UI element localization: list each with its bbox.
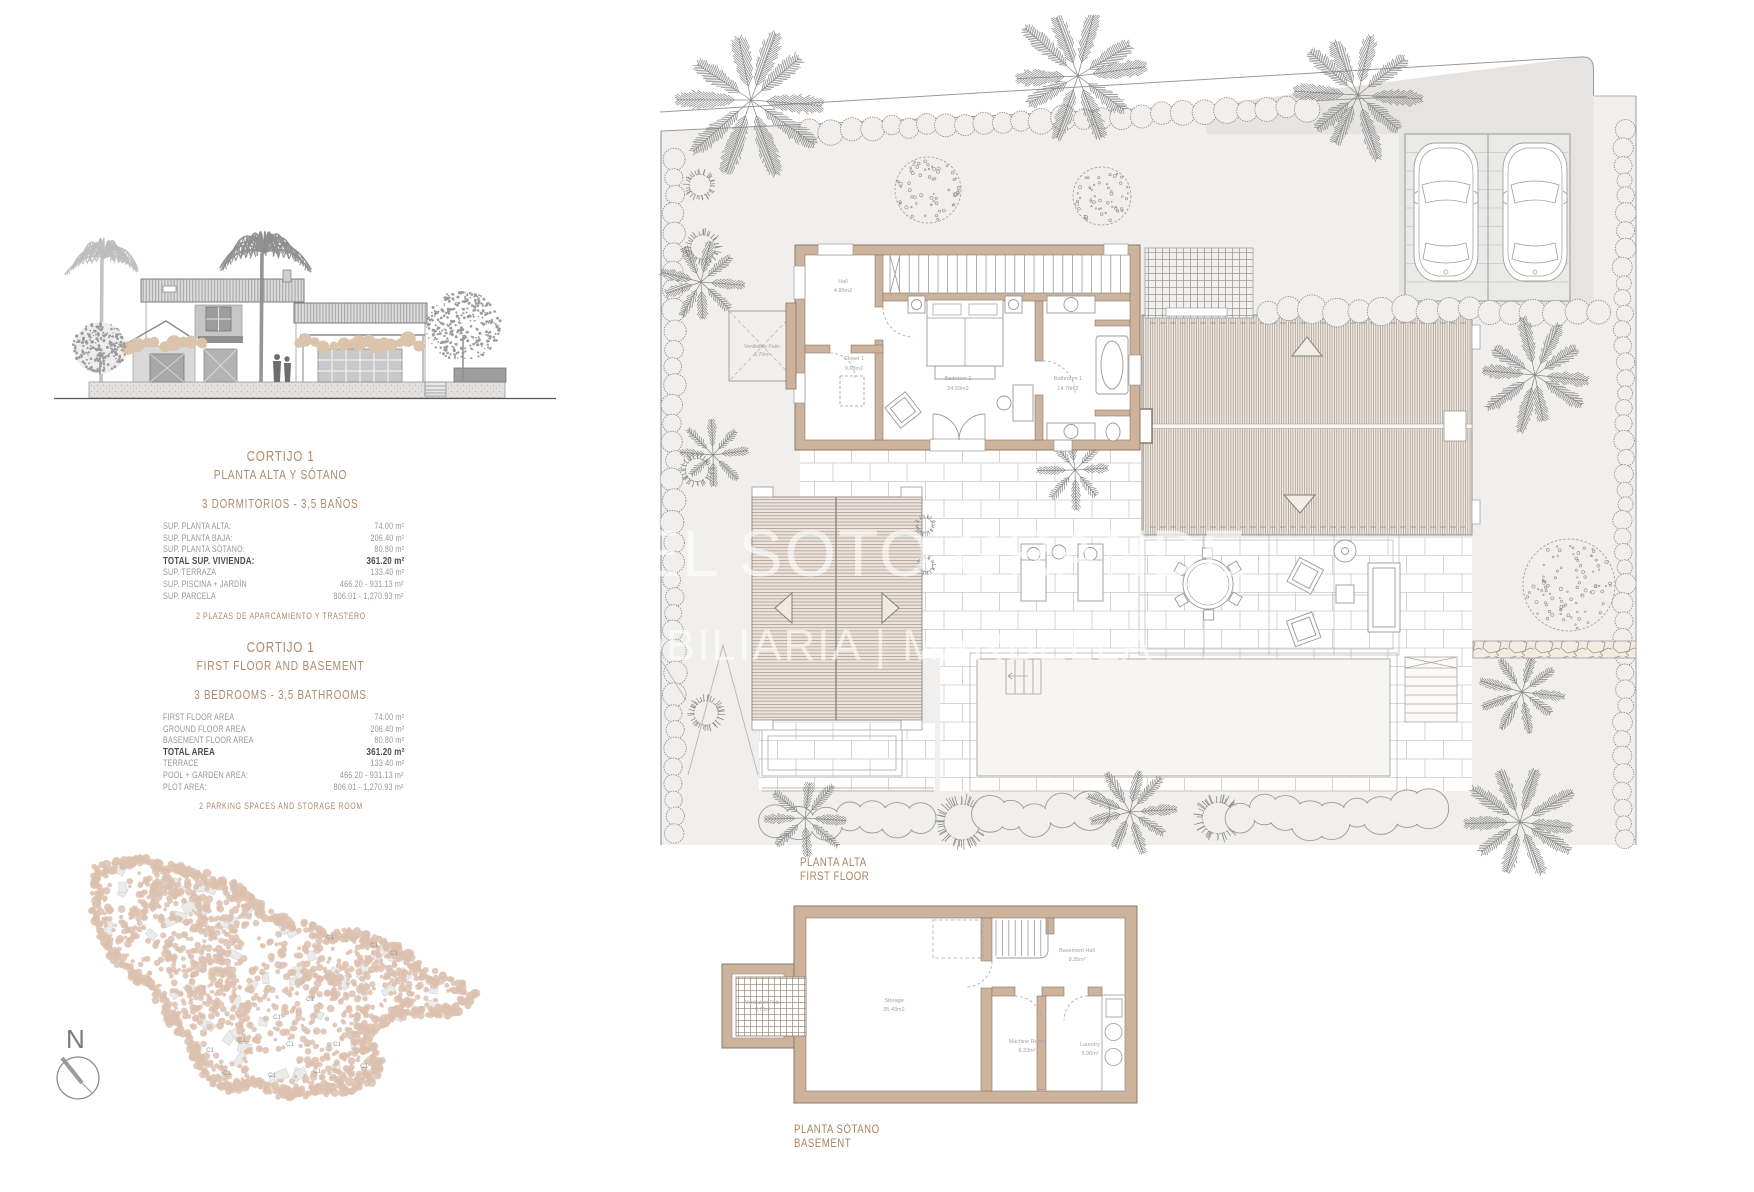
svg-text:24.93m2: 24.93m2 — [947, 386, 968, 392]
svg-text:C1: C1 — [313, 1069, 321, 1075]
svg-text:C1: C1 — [286, 1042, 294, 1048]
svg-text:C1: C1 — [306, 997, 314, 1003]
svg-text:C1: C1 — [326, 935, 334, 941]
svg-text:Ventilation Patio: Ventilation Patio — [744, 344, 780, 350]
svg-text:9.63m2: 9.63m2 — [845, 366, 863, 372]
svg-text:6.70m²: 6.70m² — [754, 352, 770, 358]
svg-text:Ventilation Patio: Ventilation Patio — [745, 1000, 781, 1006]
svg-text:INMOBILIARIA | MARBELLA: INMOBILIARIA | MARBELLA — [640, 621, 1153, 670]
svg-text:C1: C1 — [390, 951, 398, 957]
svg-text:C1: C1 — [268, 1073, 276, 1079]
svg-text:4.86m2: 4.86m2 — [834, 288, 852, 294]
svg-text:6.70m²: 6.70m² — [755, 1007, 771, 1013]
svg-text:C1: C1 — [333, 1042, 341, 1048]
svg-text:Storage: Storage — [884, 998, 903, 1004]
svg-text:Laundry: Laundry — [1080, 1042, 1100, 1048]
svg-text:Machine Room: Machine Room — [1009, 1039, 1046, 1045]
svg-text:EL SOTO GRANDE: EL SOTO GRANDE — [640, 516, 1247, 590]
svg-text:Hall: Hall — [838, 279, 847, 285]
svg-text:Basement Hall: Basement Hall — [1059, 948, 1095, 954]
svg-text:14.78m2: 14.78m2 — [1057, 386, 1078, 392]
svg-text:C1: C1 — [273, 1015, 281, 1021]
svg-text:Closet 1: Closet 1 — [844, 356, 864, 362]
svg-text:9.35m²: 9.35m² — [1068, 957, 1085, 963]
svg-text:5.96m²: 5.96m² — [1081, 1051, 1098, 1057]
svg-text:Bedroom 1: Bedroom 1 — [945, 376, 972, 382]
svg-text:C1: C1 — [360, 1064, 368, 1070]
svg-text:8.33m²: 8.33m² — [1018, 1048, 1035, 1054]
svg-text:35.43m2: 35.43m2 — [883, 1007, 904, 1013]
svg-text:Bathroom 1: Bathroom 1 — [1054, 376, 1082, 382]
svg-text:N: N — [66, 1024, 85, 1054]
svg-text:C1: C1 — [206, 1048, 214, 1054]
svg-text:C1: C1 — [370, 943, 378, 949]
svg-text:C1: C1 — [223, 1071, 231, 1077]
svg-text:C1: C1 — [238, 1038, 246, 1044]
